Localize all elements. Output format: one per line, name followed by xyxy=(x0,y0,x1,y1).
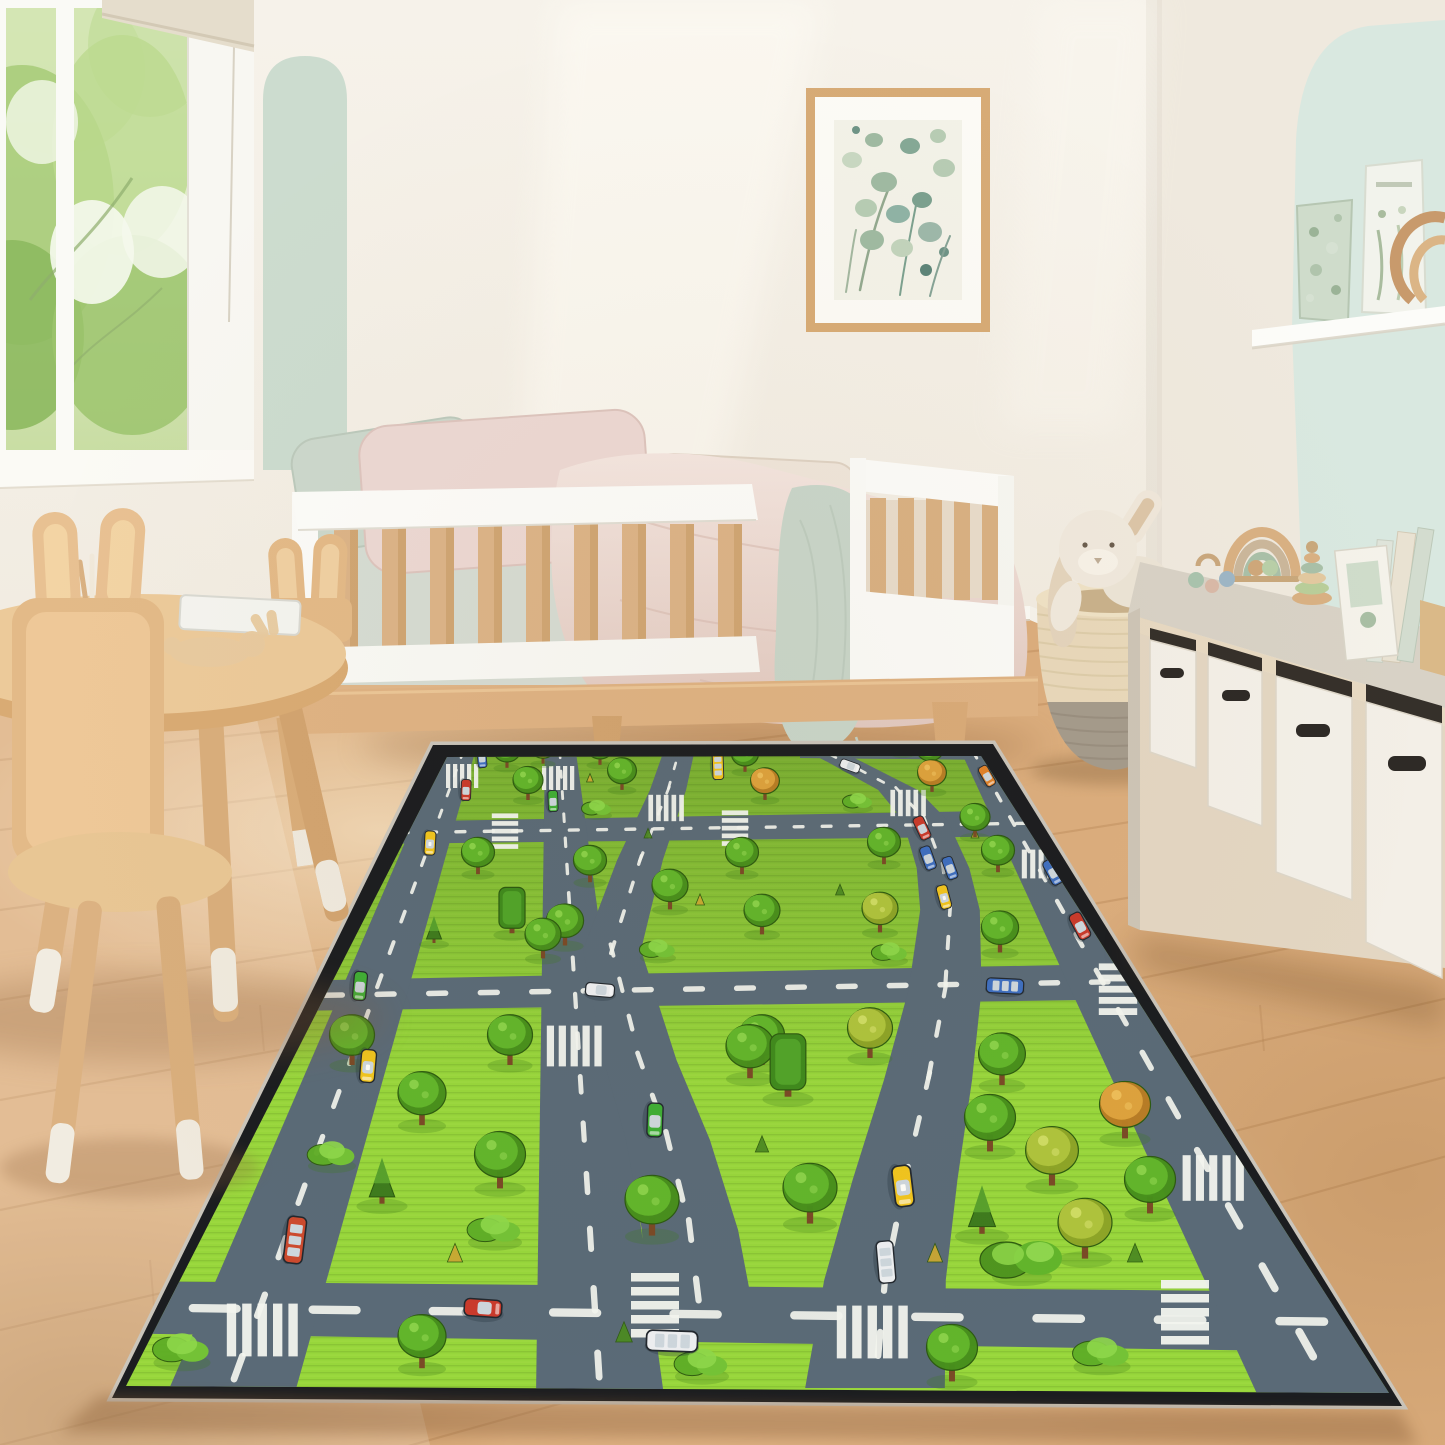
road-dash xyxy=(734,985,756,991)
road-dash xyxy=(549,1308,602,1317)
rug-tree xyxy=(398,1072,446,1134)
notepad xyxy=(179,595,301,635)
fabric-bin xyxy=(1150,640,1196,768)
rug-tree xyxy=(979,1033,1026,1093)
rug-tree xyxy=(960,804,990,843)
rug-tree xyxy=(525,918,561,964)
road-dash xyxy=(836,983,858,989)
window-jamb xyxy=(188,0,254,478)
rug-tree xyxy=(862,892,898,938)
rug-tree xyxy=(488,1015,533,1073)
rug-tree xyxy=(462,837,495,879)
rug-tree xyxy=(574,845,607,887)
rug-tree xyxy=(608,758,637,795)
road-dash xyxy=(624,827,636,831)
road-dash xyxy=(785,984,807,990)
console-side xyxy=(1128,608,1140,930)
rail-spindles xyxy=(334,524,742,652)
rug-tree xyxy=(652,869,688,915)
rug-tree xyxy=(726,837,759,879)
road-dash xyxy=(1032,1314,1085,1323)
road-dash xyxy=(426,990,449,996)
road-dash xyxy=(454,830,466,834)
window xyxy=(0,0,254,488)
rug-tree xyxy=(625,1175,679,1244)
road-dash xyxy=(708,826,720,830)
road-dash xyxy=(374,991,397,997)
rug-tree xyxy=(763,1034,814,1107)
rug-tree xyxy=(927,1324,978,1389)
road-dash xyxy=(848,824,860,828)
fabric-bin xyxy=(1208,656,1262,826)
road-dash xyxy=(308,1305,360,1314)
rug-tree xyxy=(726,1025,774,1087)
rug-tree xyxy=(918,760,947,797)
road-dash xyxy=(876,824,888,828)
rug-tree xyxy=(1125,1156,1176,1221)
rug-tree xyxy=(398,1315,446,1377)
rug-tree xyxy=(513,767,543,806)
chair-seat xyxy=(8,832,232,912)
road-dash xyxy=(790,1311,843,1320)
road-dash xyxy=(1275,1317,1328,1326)
road-dash xyxy=(793,825,805,829)
road-dash xyxy=(683,986,705,992)
rug-tree xyxy=(868,827,901,869)
window-mullion xyxy=(56,0,74,452)
road-dash xyxy=(652,827,664,831)
road-dash xyxy=(821,825,833,829)
road-dash xyxy=(478,990,500,996)
rug-tree xyxy=(1026,1127,1079,1195)
road-dash xyxy=(765,825,777,829)
road-dash xyxy=(932,823,944,827)
fabric-bin xyxy=(1366,702,1442,978)
road-dash xyxy=(568,828,580,832)
tree-foliage-view xyxy=(0,0,212,435)
picture-book xyxy=(1297,200,1352,322)
kids-bedroom-photo xyxy=(0,0,1445,1445)
wooden-bookend xyxy=(1420,600,1445,676)
rug-tree xyxy=(982,835,1015,877)
rug-tree xyxy=(1100,1081,1151,1146)
road-dash xyxy=(887,983,909,989)
rug-tree xyxy=(981,911,1018,959)
mint-arch-left xyxy=(263,56,347,470)
rug-tree xyxy=(744,894,780,940)
road-dash xyxy=(1038,980,1060,986)
wall-art xyxy=(806,88,990,332)
rug-tree xyxy=(1058,1198,1112,1267)
road-dash xyxy=(937,982,959,988)
road-dash xyxy=(539,829,551,833)
rug-tree xyxy=(783,1163,837,1232)
rug-tree xyxy=(848,1008,893,1066)
road-dash xyxy=(632,987,654,993)
road-dash xyxy=(680,827,692,831)
road-dash xyxy=(596,828,608,832)
road-dash xyxy=(529,989,551,995)
rug-tree xyxy=(751,768,780,805)
scene-canvas xyxy=(0,0,1445,1445)
road-dash xyxy=(911,1313,964,1322)
rug-tree xyxy=(965,1094,1016,1159)
rug-tree xyxy=(475,1131,526,1196)
fabric-bin xyxy=(1276,676,1352,900)
